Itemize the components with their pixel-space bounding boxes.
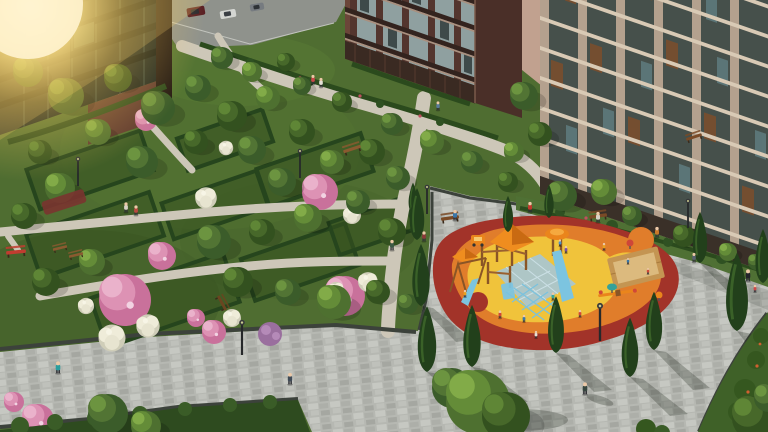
lilac-bush [258,322,282,346]
courtyard-render [0,0,768,432]
scene-canvas [0,0,768,432]
spring-bus [471,235,485,247]
